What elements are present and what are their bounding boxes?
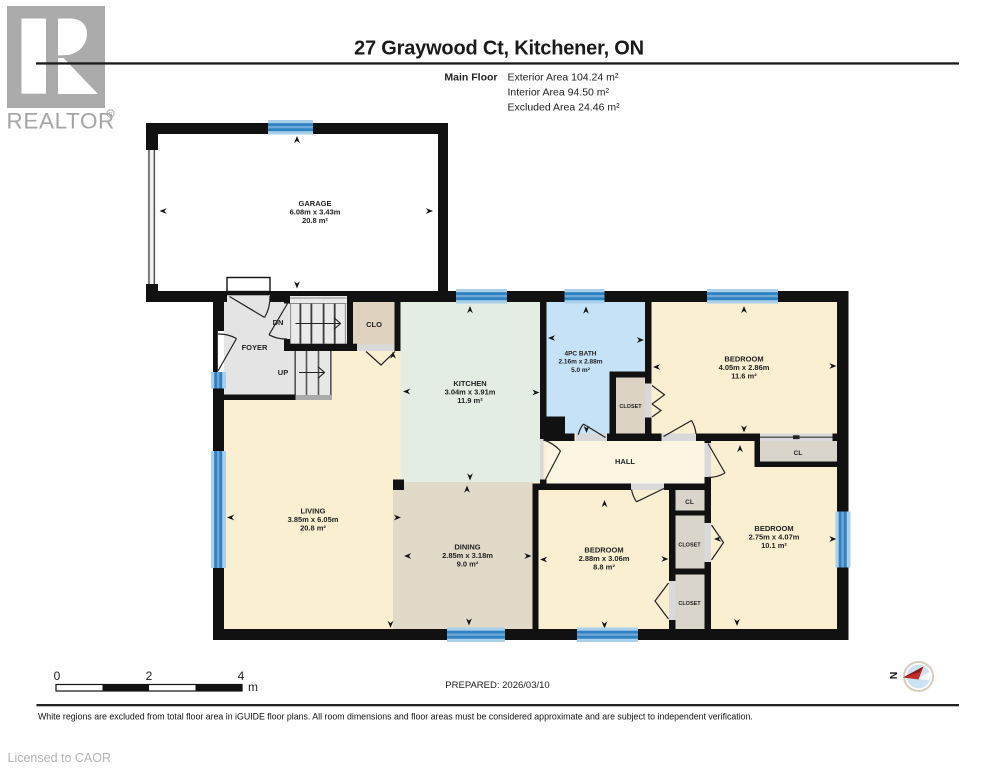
svg-text:REALTOR: REALTOR: [7, 109, 115, 134]
svg-text:5.0 m²: 5.0 m²: [571, 367, 591, 374]
svg-text:CL: CL: [685, 499, 694, 506]
svg-text:CLOSET: CLOSET: [678, 543, 701, 549]
svg-text:m: m: [248, 680, 258, 694]
svg-text:11.9 m²: 11.9 m²: [457, 396, 483, 405]
svg-text:2: 2: [146, 669, 153, 683]
svg-text:FOYER: FOYER: [242, 343, 268, 352]
svg-text:CLOSET: CLOSET: [678, 601, 701, 607]
svg-text:N: N: [888, 672, 900, 680]
svg-text:9.0 m²: 9.0 m²: [457, 560, 479, 569]
svg-text:CLO: CLO: [366, 320, 382, 329]
svg-text:11.6 m²: 11.6 m²: [731, 372, 757, 381]
svg-text:2.16m x 2.88m: 2.16m x 2.88m: [558, 359, 602, 366]
svg-text:Main Floor: Main Floor: [444, 72, 497, 84]
svg-text:R: R: [109, 112, 113, 118]
svg-text:0: 0: [54, 669, 61, 683]
svg-text:27 Graywood Ct, Kitchener, ON: 27 Graywood Ct, Kitchener, ON: [354, 38, 644, 60]
svg-text:20.8 m²: 20.8 m²: [300, 524, 326, 533]
svg-text:White regions are excluded fro: White regions are excluded from total fl…: [38, 712, 753, 722]
svg-text:PREPARED: 2026/03/10: PREPARED: 2026/03/10: [445, 680, 549, 691]
svg-text:HALL: HALL: [615, 457, 635, 466]
svg-text:UP: UP: [278, 368, 288, 377]
svg-text:CL: CL: [794, 450, 803, 457]
svg-text:10.1 m²: 10.1 m²: [761, 541, 787, 550]
svg-text:4: 4: [238, 669, 245, 683]
svg-text:Exterior Area 104.24 m²: Exterior Area 104.24 m²: [508, 72, 619, 84]
svg-text:4PC BATH: 4PC BATH: [564, 351, 596, 358]
svg-text:CLOSET: CLOSET: [619, 404, 642, 410]
svg-text:20.8 m²: 20.8 m²: [302, 216, 328, 225]
svg-text:Interior Area 94.50 m²: Interior Area 94.50 m²: [508, 87, 610, 99]
svg-text:Excluded Area 24.46 m²: Excluded Area 24.46 m²: [508, 102, 621, 114]
svg-text:8.8 m²: 8.8 m²: [593, 563, 615, 572]
svg-text:Licensed to CAOR: Licensed to CAOR: [8, 751, 112, 765]
